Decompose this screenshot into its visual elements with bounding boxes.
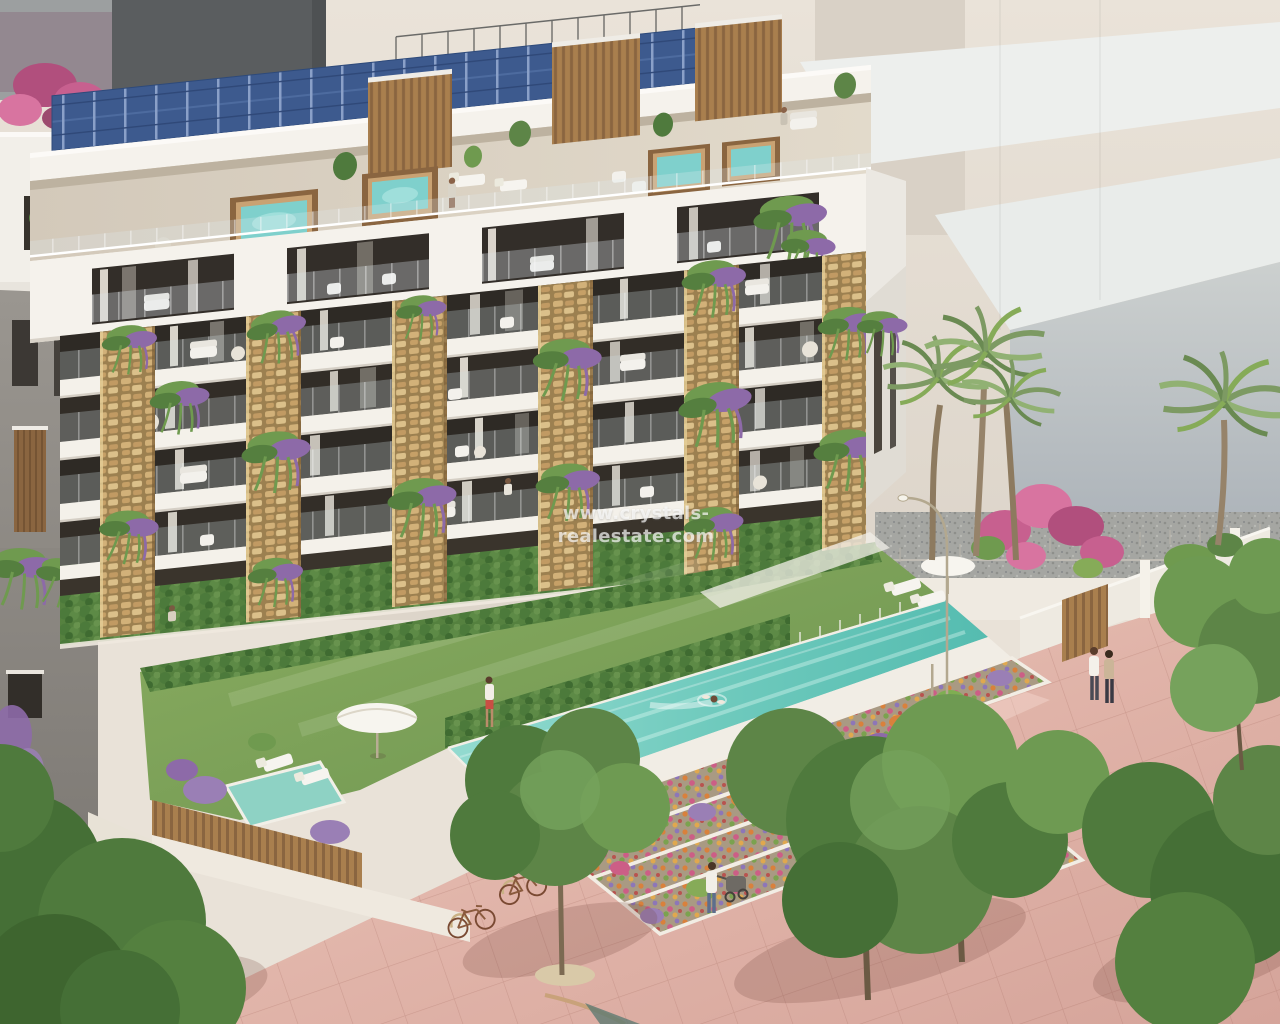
render-image: www.crystals-realestate.com [0, 0, 1280, 1024]
render-scene [0, 0, 1280, 1024]
main-building [30, 0, 883, 652]
